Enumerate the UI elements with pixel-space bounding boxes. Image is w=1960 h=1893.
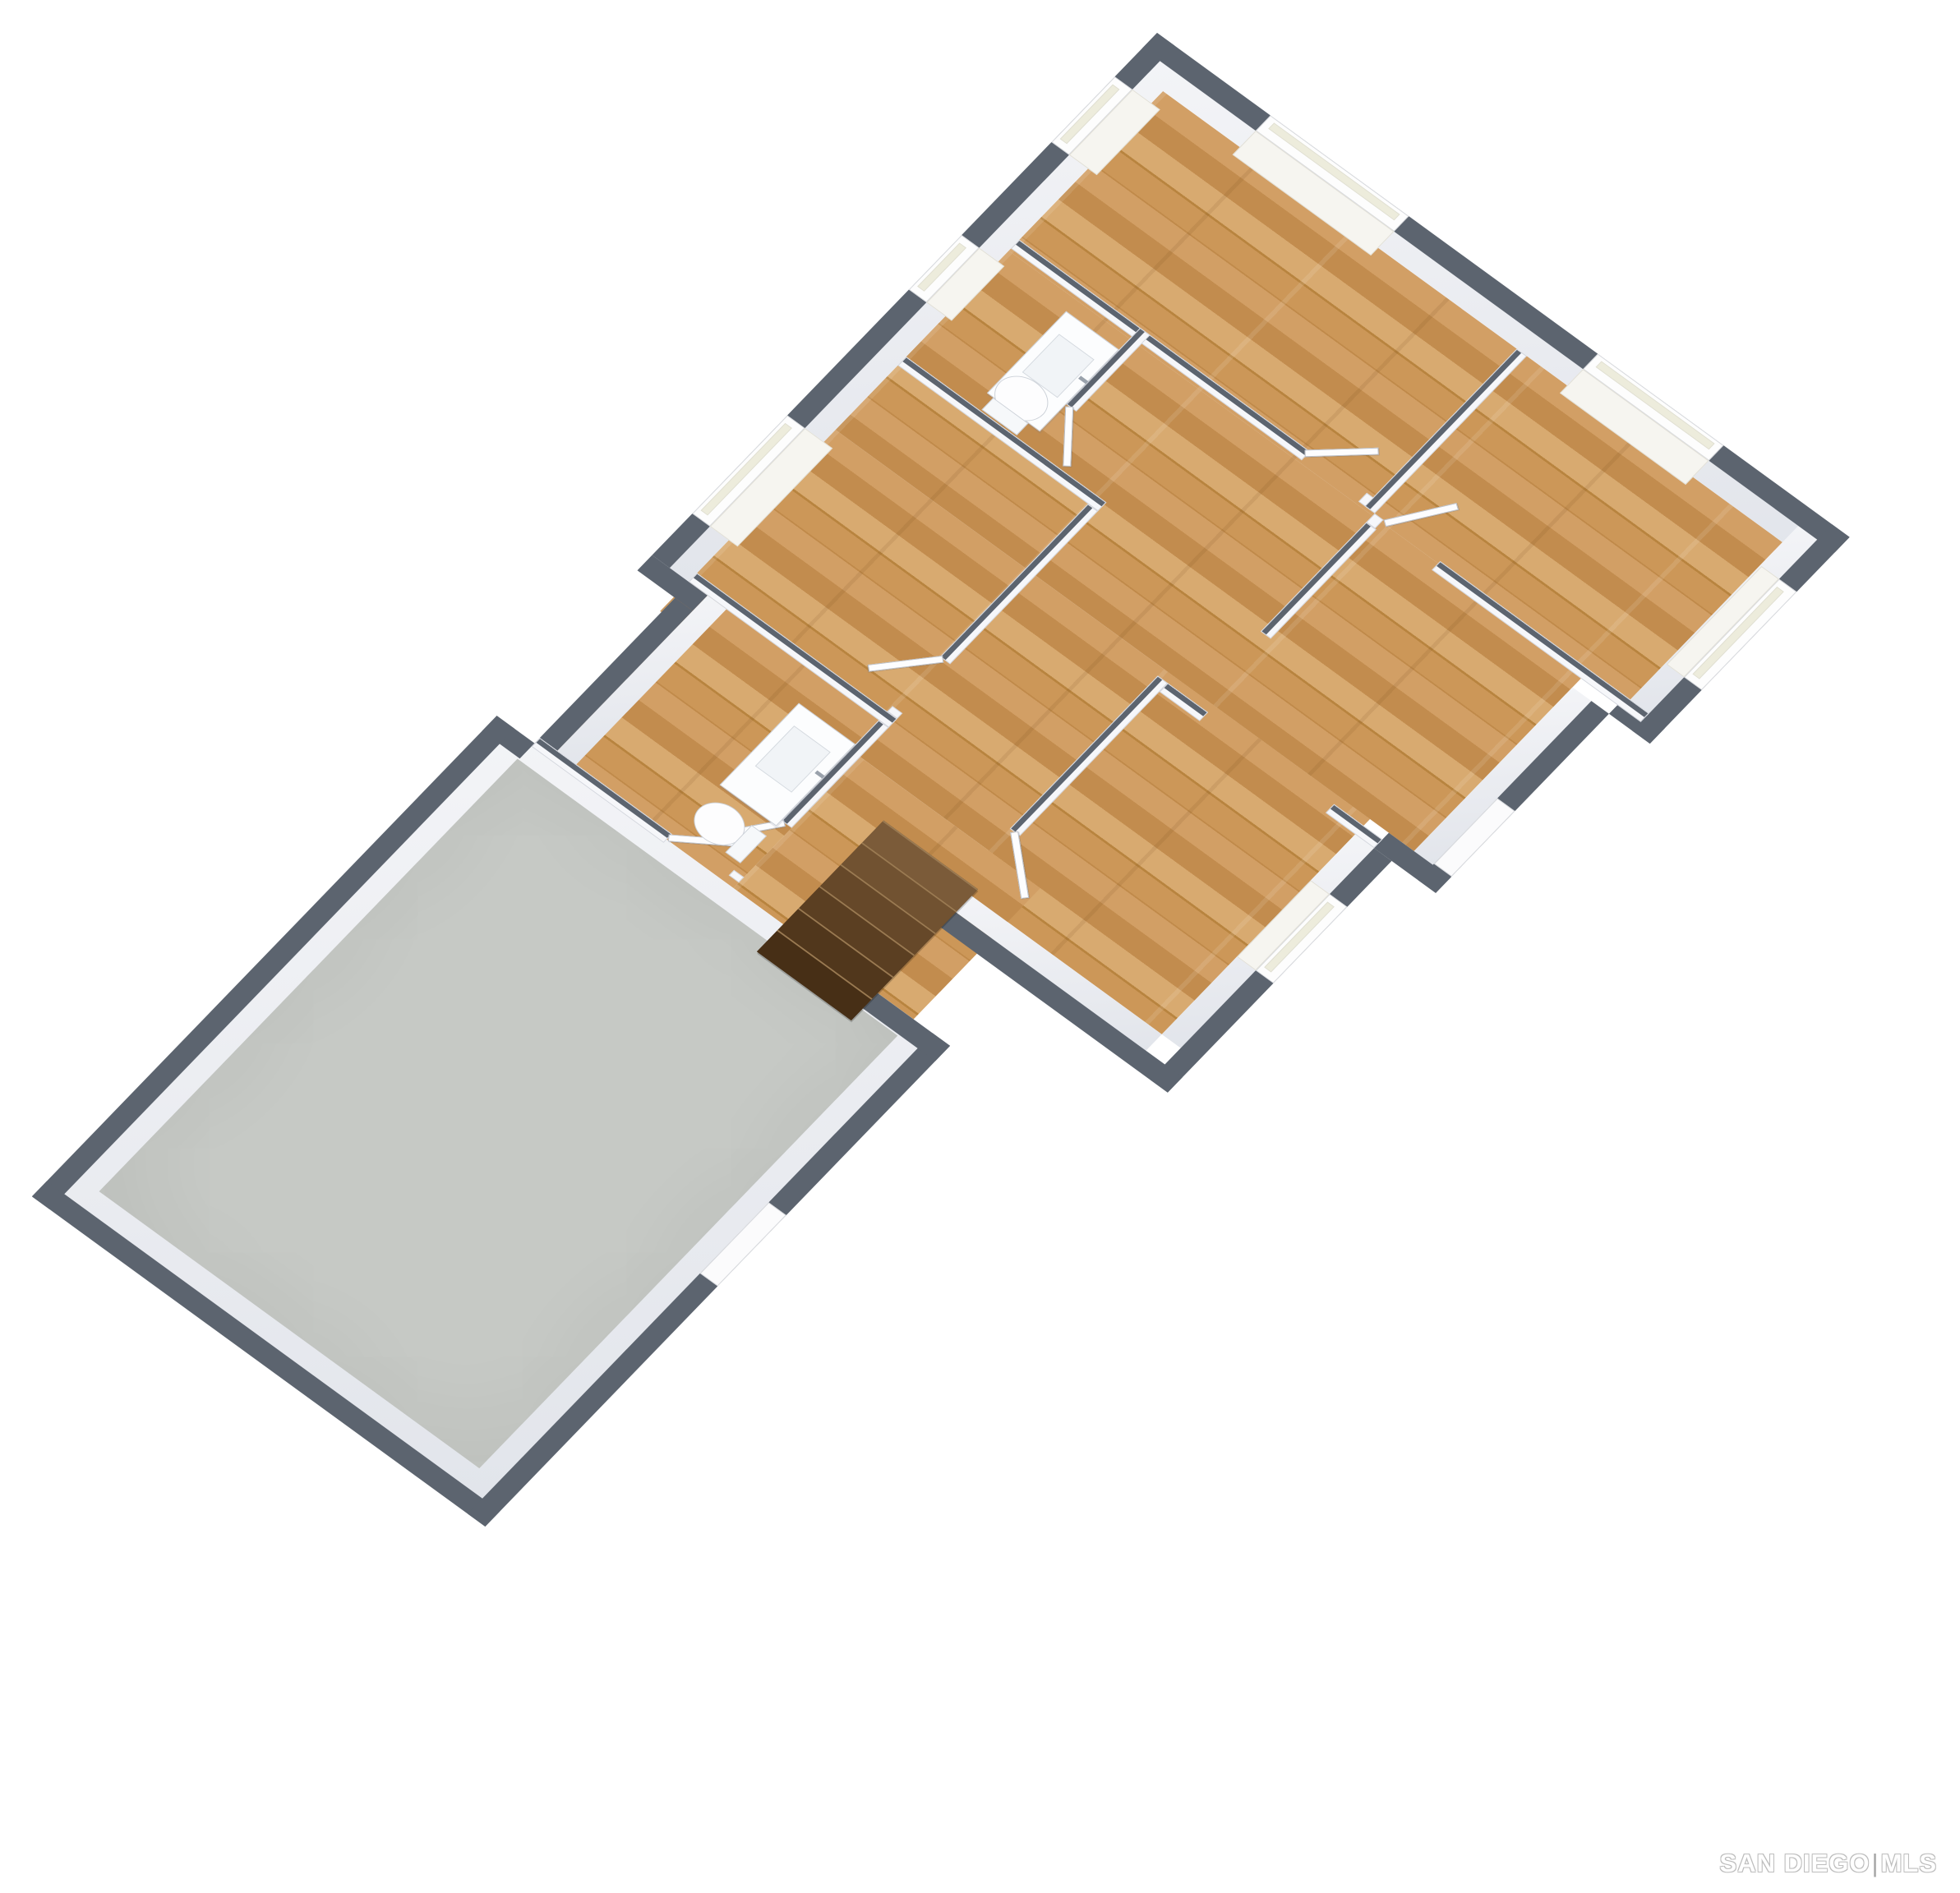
floorplan-canvas: SAN DIEGO|MLS bbox=[0, 0, 1960, 1893]
watermark-text-secondary: MLS bbox=[1881, 1849, 1937, 1877]
floorplan-3d bbox=[21, 33, 1875, 1730]
mls-watermark: SAN DIEGO|MLS bbox=[1720, 1849, 1937, 1878]
watermark-text-primary: SAN DIEGO bbox=[1720, 1849, 1870, 1877]
watermark-separator: | bbox=[1870, 1849, 1881, 1877]
